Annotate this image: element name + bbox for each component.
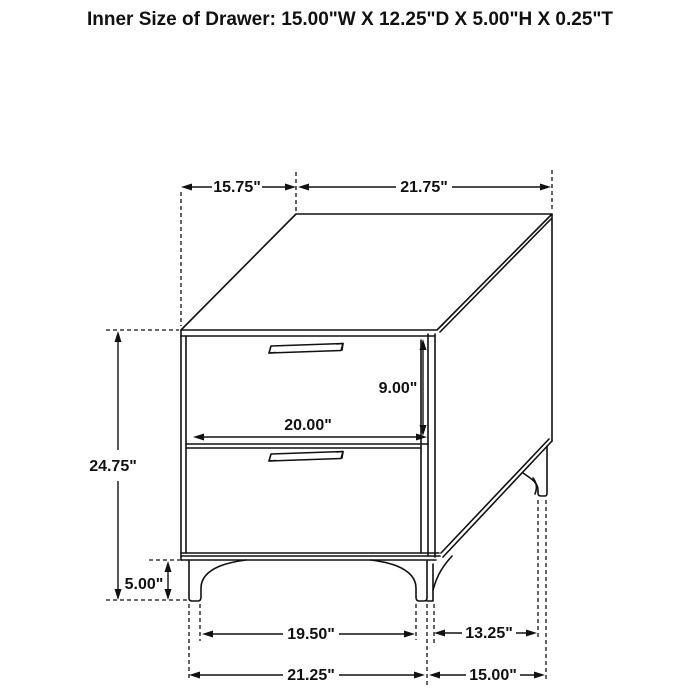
dim-side-leg-span: 13.25" [434, 625, 537, 642]
nightstand-front-face [181, 334, 440, 560]
nightstand-side-panel [435, 214, 552, 557]
dim-label-overall-height: 24.75" [89, 458, 137, 475]
dim-label-top-depth: 15.75" [213, 179, 261, 196]
nightstand-dimension-drawing: 15.75" 21.75" 24.75" 5.00" [0, 0, 700, 700]
dim-label-leg-height: 5.00" [125, 576, 164, 593]
dim-top-width: 21.75" [298, 179, 551, 196]
dim-drawer-height: 9.00" [379, 339, 427, 436]
dim-label-base-depth: 15.00" [469, 667, 517, 684]
dim-label-side-leg-span: 13.25" [465, 625, 513, 642]
dim-label-drawer-width: 20.00" [284, 417, 332, 434]
front-right-leg [371, 556, 452, 601]
dim-top-depth: 15.75" [181, 179, 296, 196]
drawer-handle-bottom [269, 452, 343, 462]
drawer-handle-top [269, 344, 343, 354]
dim-label-base-width: 21.25" [287, 667, 335, 684]
diagram-page: Inner Size of Drawer: 15.00"W X 12.25"D … [0, 0, 700, 700]
front-left-leg [189, 560, 246, 601]
dim-base-depth: 15.00" [429, 667, 545, 684]
dim-label-front-leg-span: 19.50" [287, 626, 335, 643]
dim-base-width: 21.25" [189, 667, 425, 684]
dim-drawer-width: 20.00" [193, 417, 427, 441]
dim-overall-height: 24.75" [89, 331, 137, 600]
dim-label-drawer-height: 9.00" [379, 380, 418, 397]
dim-leg-height: 5.00" [125, 561, 172, 600]
nightstand-top-face [181, 214, 552, 336]
dim-label-top-width: 21.75" [400, 179, 448, 196]
dim-front-leg-span: 19.50" [202, 626, 415, 643]
